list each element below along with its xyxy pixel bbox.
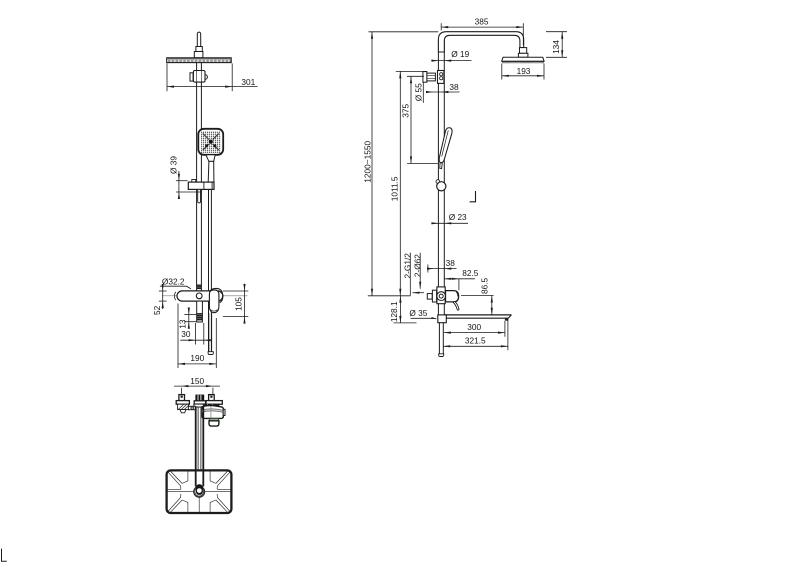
svg-text:82.5: 82.5 <box>462 268 479 278</box>
svg-text:375: 375 <box>401 103 411 117</box>
svg-text:Ø 55: Ø 55 <box>414 83 424 101</box>
svg-text:Ø 35: Ø 35 <box>409 308 427 318</box>
svg-text:2-G1/2: 2-G1/2 <box>403 253 413 279</box>
svg-text:30: 30 <box>181 329 191 339</box>
svg-text:385: 385 <box>475 17 489 27</box>
svg-text:301: 301 <box>241 77 255 87</box>
svg-text:190: 190 <box>190 353 204 363</box>
svg-text:300: 300 <box>467 322 481 332</box>
svg-text:134: 134 <box>551 40 561 54</box>
svg-text:86.5: 86.5 <box>480 277 490 294</box>
svg-text:38: 38 <box>446 258 456 268</box>
svg-text:128.1: 128.1 <box>389 301 399 322</box>
svg-text:Ø 19: Ø 19 <box>451 49 469 59</box>
svg-text:13: 13 <box>178 319 188 329</box>
svg-text:52: 52 <box>152 305 162 315</box>
svg-text:321.5: 321.5 <box>465 336 486 346</box>
svg-text:Ø32.2: Ø32.2 <box>162 276 185 286</box>
svg-text:150: 150 <box>190 376 204 386</box>
svg-text:1200~1550: 1200~1550 <box>363 141 373 183</box>
svg-text:Ø 39: Ø 39 <box>169 156 179 174</box>
svg-text:105: 105 <box>234 297 244 311</box>
svg-text:38: 38 <box>449 82 459 92</box>
svg-text:2-Ø62: 2-Ø62 <box>412 254 422 277</box>
svg-text:Ø 23: Ø 23 <box>449 212 467 222</box>
svg-text:193: 193 <box>517 66 531 76</box>
svg-text:1011.5: 1011.5 <box>389 176 399 201</box>
